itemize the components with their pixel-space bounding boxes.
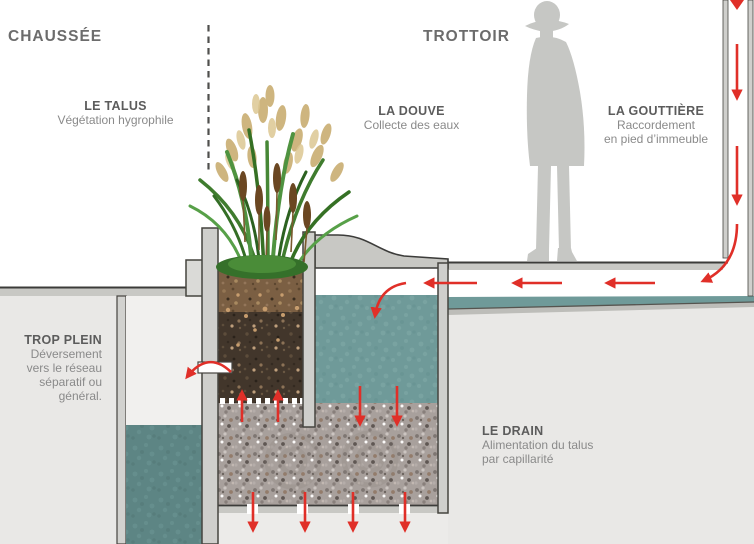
label-trop-plein-desc: Déversement vers le réseau séparatif ou … <box>6 348 102 403</box>
label-drain-desc: Alimentation du talus par capillarité <box>482 439 657 467</box>
overflow-chamber-wall <box>117 296 126 544</box>
subsoil-layer <box>218 312 303 403</box>
building-wall <box>748 0 753 296</box>
label-douve: LA DOUVE Collecte des eaux <box>334 104 489 133</box>
pedestrian-silhouette <box>525 1 585 261</box>
label-talus: LE TALUS Végétation hygrophile <box>38 99 193 128</box>
label-douve-desc: Collecte des eaux <box>334 119 489 133</box>
label-talus-desc: Végétation hygrophile <box>38 114 193 128</box>
downspout-arrow-top <box>730 0 744 10</box>
label-gouttiere-desc: Raccordement en pied d’immeuble <box>578 119 734 147</box>
curb <box>186 260 203 296</box>
label-gouttiere-title: LA GOUTTIÈRE <box>578 104 734 118</box>
downspout-outlet-arrow <box>703 224 737 281</box>
douve-right-wall <box>438 263 448 513</box>
label-gouttiere: LA GOUTTIÈRE Raccordement en pied d’imme… <box>578 104 734 147</box>
label-drain-title: LE DRAIN <box>482 424 657 438</box>
talus-soil <box>218 263 304 404</box>
label-trop-plein: TROP PLEIN Déversement vers le réseau sé… <box>6 333 102 404</box>
douve-cover-slab <box>315 235 448 268</box>
label-drain: LE DRAIN Alimentation du talus par capil… <box>482 424 657 467</box>
label-douve-title: LA DOUVE <box>334 104 489 118</box>
label-talus-title: LE TALUS <box>38 99 193 113</box>
sidewalk-structure <box>448 262 754 544</box>
douve-air-gap <box>315 268 438 295</box>
planter-left-wall <box>202 228 218 544</box>
label-trop-plein-title: TROP PLEIN <box>6 333 102 347</box>
zone-heading-chaussee: CHAUSSÉE <box>8 28 102 46</box>
overflow-chamber-water <box>126 425 202 544</box>
douve-chamber <box>315 235 448 403</box>
zone-heading-trottoir: TROTTOIR <box>423 28 510 46</box>
cross-section-diagram: CHAUSSÉE TROTTOIR LE TALUS Végétation hy… <box>0 0 754 544</box>
